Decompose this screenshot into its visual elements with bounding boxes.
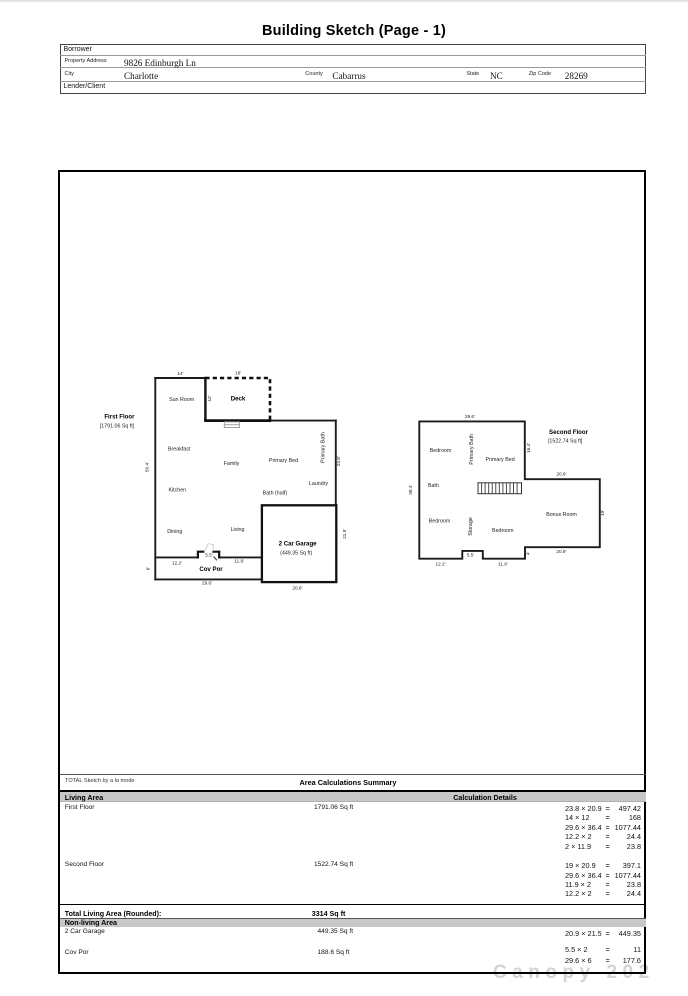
svg-text:18': 18' <box>235 370 241 375</box>
svg-text:Bath (half): Bath (half) <box>263 490 288 496</box>
svg-text:Primary Bed: Primary Bed <box>269 458 298 464</box>
svg-text:Bedroom: Bedroom <box>429 519 451 525</box>
svg-text:First Floor: First Floor <box>104 413 135 420</box>
svg-text:Cov Por: Cov Por <box>199 566 223 573</box>
svg-text:Bath: Bath <box>428 483 439 489</box>
svg-text:11.9': 11.9' <box>234 558 244 563</box>
svg-text:Storage: Storage <box>468 517 474 536</box>
svg-text:20.9': 20.9' <box>556 549 566 554</box>
svg-text:12.2': 12.2' <box>435 561 445 566</box>
svg-text:Deck: Deck <box>231 396 246 403</box>
svg-text:5.5': 5.5' <box>467 552 475 557</box>
svg-text:Laundry: Laundry <box>309 481 328 487</box>
svg-text:16.4': 16.4' <box>526 443 531 453</box>
svg-text:19': 19' <box>600 510 605 516</box>
svg-text:12.2': 12.2' <box>172 560 182 565</box>
svg-text:29.6': 29.6' <box>465 414 475 419</box>
svg-text:Second Floor: Second Floor <box>549 429 589 436</box>
svg-text:Primary Bath: Primary Bath <box>469 434 475 465</box>
svg-text:Sun Room: Sun Room <box>169 397 195 403</box>
svg-text:23.8': 23.8' <box>336 456 341 466</box>
svg-text:29.6': 29.6' <box>202 581 212 586</box>
svg-text:Breakfast: Breakfast <box>168 447 191 453</box>
svg-text:5.5': 5.5' <box>205 552 213 557</box>
svg-text:Dining: Dining <box>167 529 182 535</box>
svg-text:[1791.06 Sq ft]: [1791.06 Sq ft] <box>100 424 135 430</box>
svg-text:Primary Bed: Primary Bed <box>486 457 515 463</box>
svg-text:14': 14' <box>177 371 183 376</box>
svg-text:21.5': 21.5' <box>342 529 347 539</box>
svg-text:Primary Bath: Primary Bath <box>320 432 326 463</box>
svg-text:6': 6' <box>146 567 151 571</box>
svg-text:38.4': 38.4' <box>408 485 413 495</box>
svg-text:[1522.74 Sq ft]: [1522.74 Sq ft] <box>548 439 583 445</box>
svg-text:(449.35 Sq ft): (449.35 Sq ft) <box>280 550 312 556</box>
svg-text:2 Car Garage: 2 Car Garage <box>279 540 318 547</box>
svg-text:20.9': 20.9' <box>292 585 302 590</box>
svg-text:20.9': 20.9' <box>556 472 566 477</box>
svg-text:Family: Family <box>224 461 240 467</box>
svg-text:50.4': 50.4' <box>145 462 150 472</box>
svg-text:Kitchen: Kitchen <box>168 487 186 493</box>
svg-text:Bedroom: Bedroom <box>492 528 514 534</box>
svg-text:Bedroom: Bedroom <box>430 448 452 454</box>
svg-text:12': 12' <box>207 395 212 401</box>
svg-text:11.9': 11.9' <box>498 561 508 566</box>
svg-text:4': 4' <box>526 551 531 555</box>
svg-text:Living: Living <box>231 527 245 533</box>
svg-text:Bonus Room: Bonus Room <box>546 512 577 518</box>
